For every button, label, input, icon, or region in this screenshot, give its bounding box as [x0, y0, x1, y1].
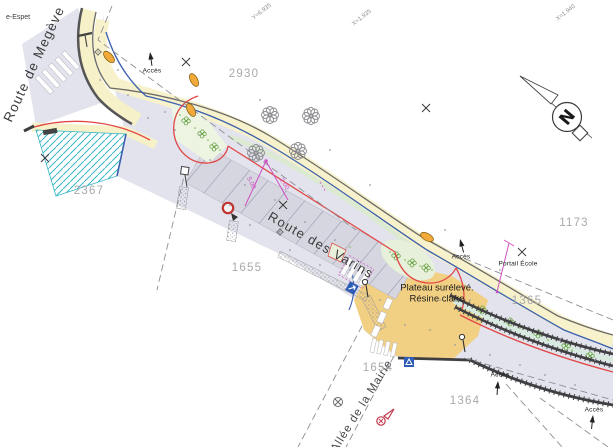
acces-label-1: Accès: [143, 68, 162, 75]
parcel-1173: 1173: [559, 217, 589, 229]
acces-label-2: Accès: [452, 254, 471, 261]
blue-crossing-sign: [404, 357, 414, 367]
acces-label-4: Accès: [585, 407, 604, 414]
portail-ecole-label: Portail École: [498, 261, 537, 268]
parcel-1365: 1365: [512, 295, 542, 307]
parcel-1655: 1655: [232, 262, 262, 274]
parcel-1364: 1364: [450, 395, 480, 407]
site-plan: N e-Espet Route de Megève Route des Vari…: [0, 0, 613, 447]
parcel-2367: 2367: [74, 185, 104, 197]
plateau-note: Plateau surélevé. Résine claire: [400, 283, 473, 304]
north-arrow: N: [520, 76, 592, 141]
red-flag-sign: [377, 409, 394, 425]
parcel-1654: 1654: [363, 362, 393, 374]
survey-benchmark: [334, 398, 343, 407]
acces-label-3: Accès: [491, 372, 510, 379]
place-label: e-Espet: [6, 14, 30, 21]
plan-drawing: N: [0, 0, 613, 447]
plateau-note-line2: Résine claire: [400, 294, 473, 305]
parcel-2930: 2930: [229, 68, 259, 80]
